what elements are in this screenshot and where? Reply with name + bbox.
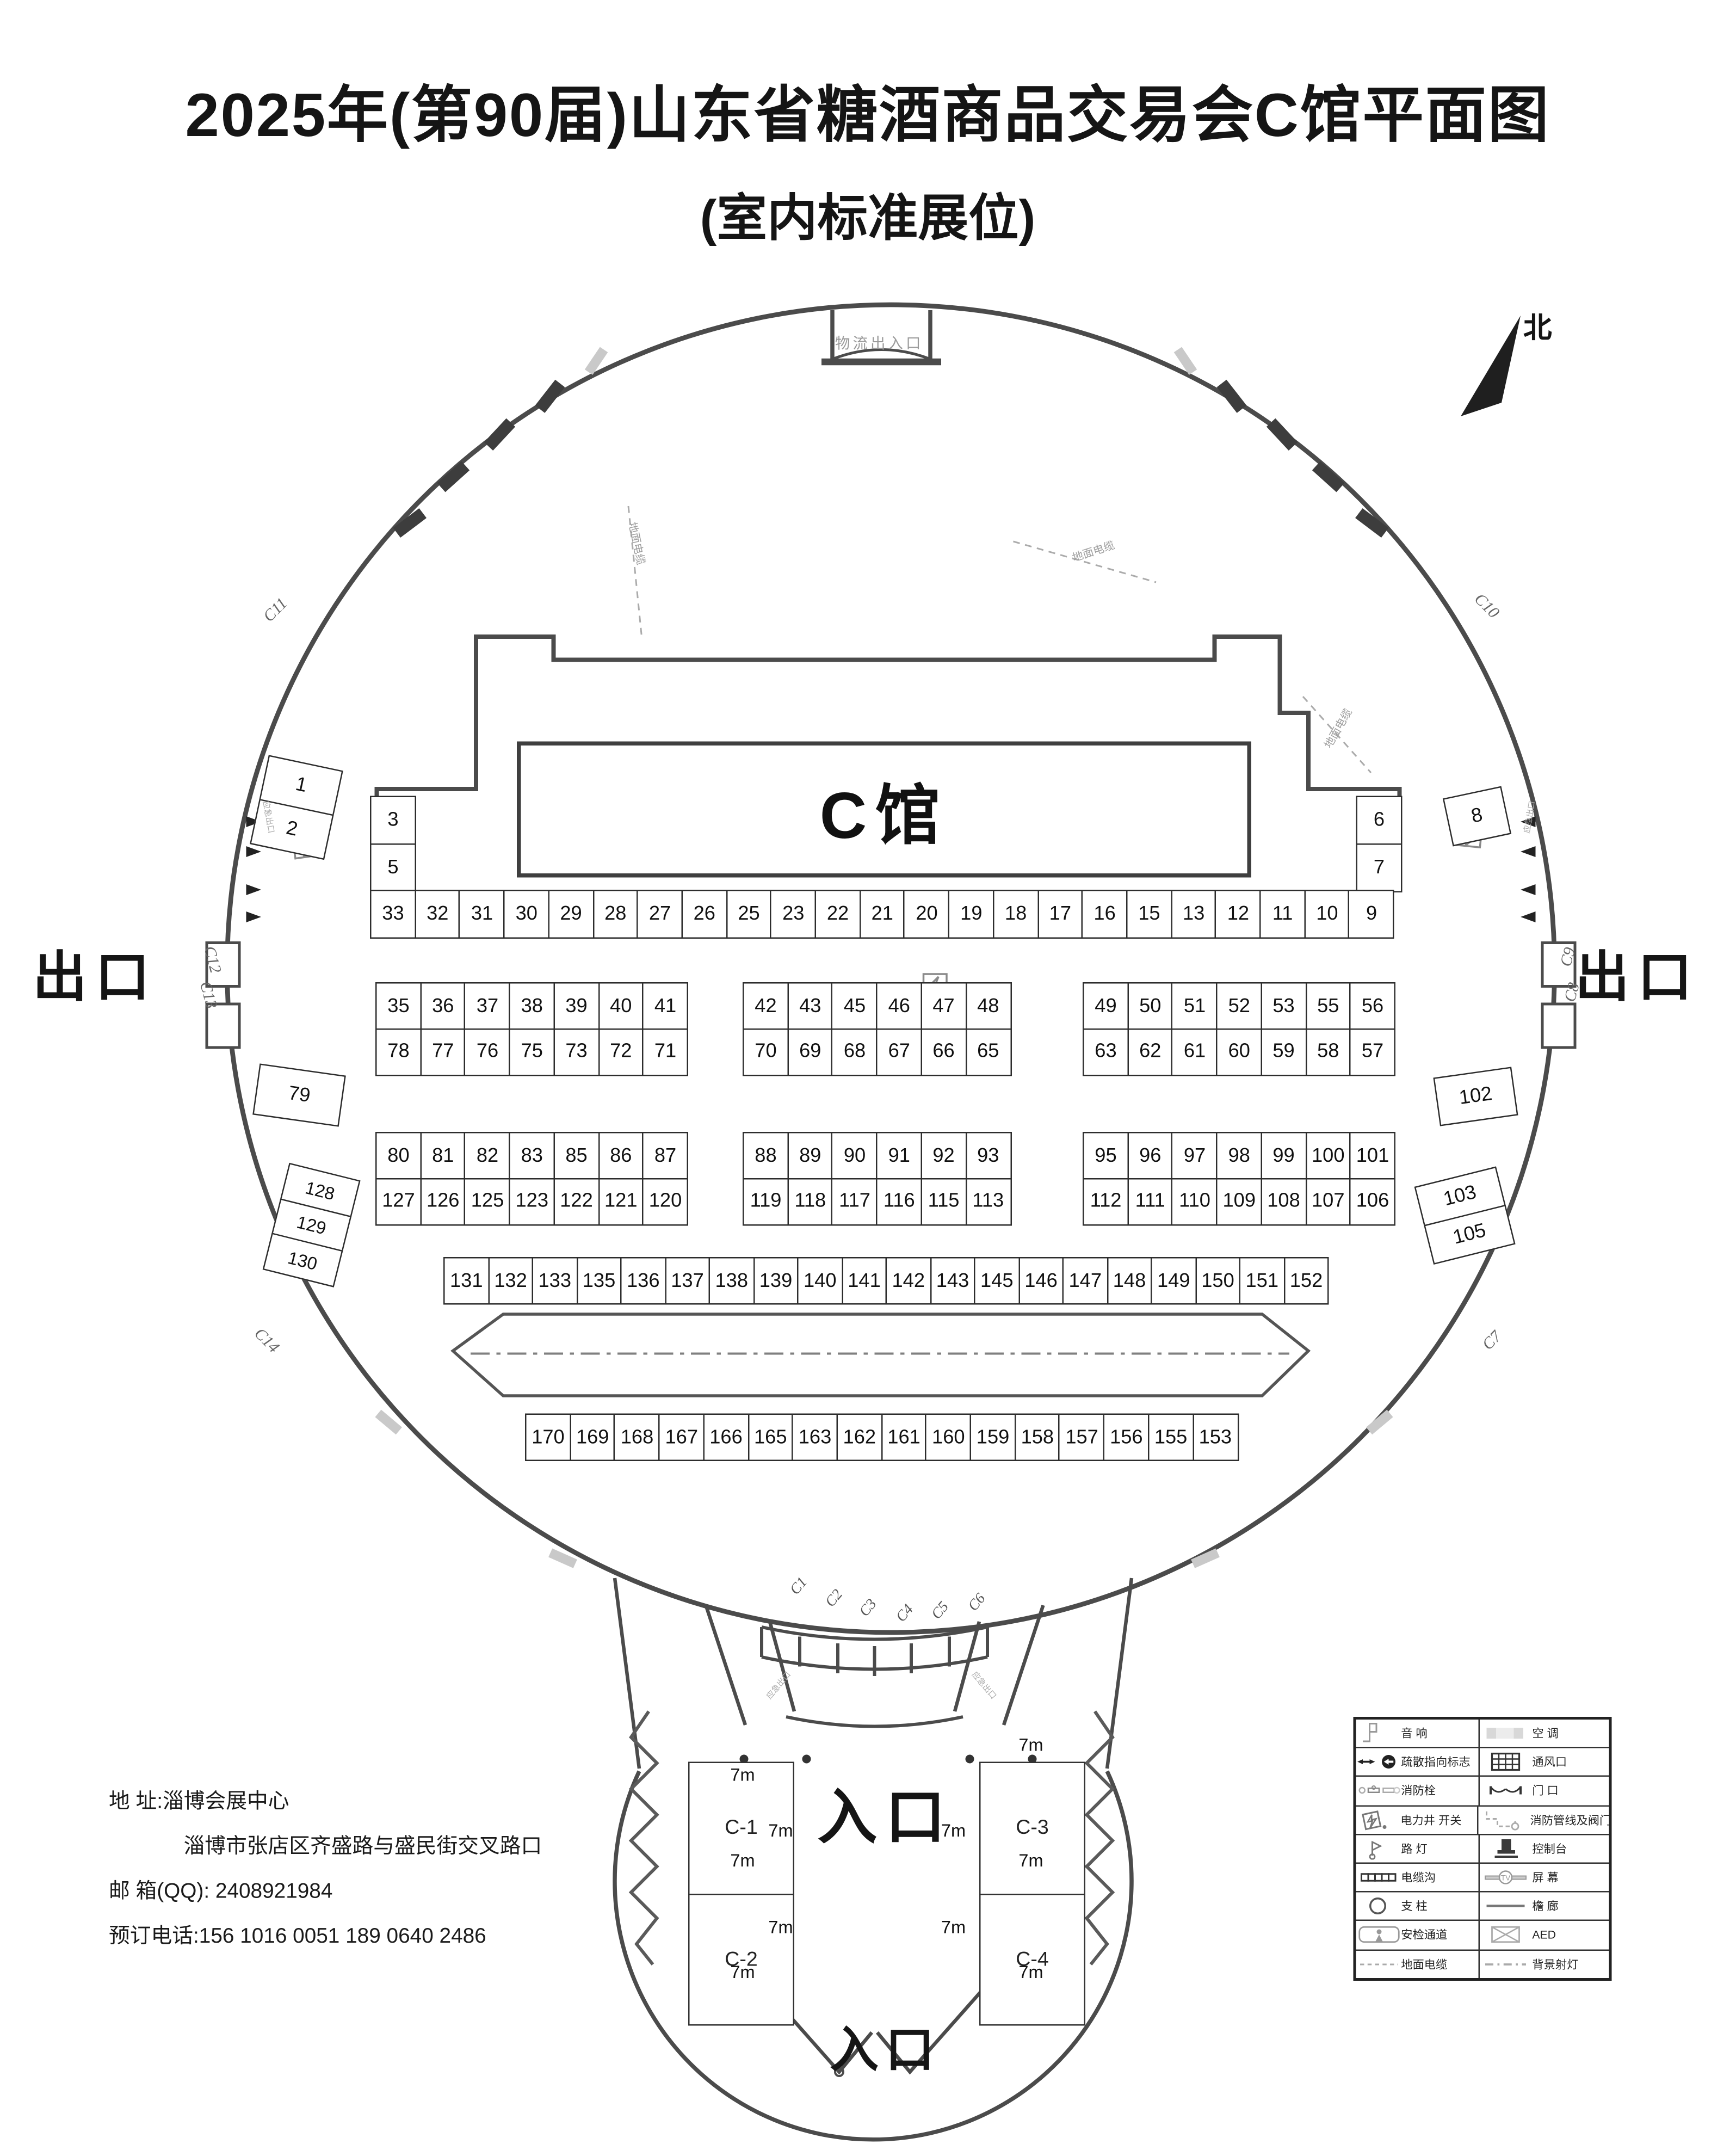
booth-cell: 119	[743, 1178, 789, 1225]
booth-cell: 95	[1083, 1132, 1129, 1180]
booth-cell: 76	[465, 1028, 511, 1076]
booth-cell: 46	[876, 982, 922, 1030]
booth-cell: 168	[614, 1414, 660, 1462]
booth-cell: 11	[1259, 890, 1306, 939]
legend-label: 背景射灯	[1532, 1950, 1609, 1977]
booth-cell: 10	[1304, 890, 1350, 939]
north-arrow-icon	[1461, 316, 1521, 416]
booth-cell: 29	[548, 890, 594, 939]
booth-row-70-65: 706968676665	[743, 1028, 1011, 1076]
pillar-icon	[1356, 1893, 1401, 1920]
big-booth-c3-c4: C-3 C-4	[979, 1762, 1085, 2026]
booth-cell: 93	[965, 1132, 1011, 1180]
booth-cell: 43	[787, 982, 833, 1030]
booth-cell: 23	[770, 890, 817, 939]
booth-cell: 47	[920, 982, 967, 1030]
booth-cell: 28	[592, 890, 639, 939]
booth-cell: 112	[1083, 1178, 1129, 1225]
ac-icon	[1478, 1720, 1532, 1747]
booth-cell: 140	[797, 1257, 843, 1305]
booth-cell: 17	[1037, 890, 1083, 939]
booth-cell: 141	[841, 1257, 887, 1305]
booth-cell: 158	[1014, 1414, 1060, 1462]
legend-label: 电力井 开关	[1400, 1806, 1476, 1833]
booth-cell: 170	[525, 1414, 571, 1462]
background-spotlight-icon	[1478, 1950, 1532, 1977]
booth-cell: 3	[370, 796, 416, 845]
exit-right-label: 出口	[1575, 933, 1700, 1012]
booth-cell: 118	[787, 1178, 833, 1225]
legend-label: 电缆沟	[1401, 1864, 1478, 1891]
booth-cell: 13	[1171, 890, 1217, 939]
booth-cell: 32	[415, 890, 461, 939]
booth-cell: 58	[1305, 1028, 1351, 1076]
booth-cell: 53	[1261, 982, 1307, 1030]
booth-cell: 72	[598, 1028, 644, 1076]
qq-line: 邮 箱(QQ): 2408921984	[109, 1869, 542, 1914]
booth-cell: 113	[965, 1178, 1011, 1225]
booth-cell: 89	[787, 1132, 833, 1180]
vent-icon	[1478, 1748, 1532, 1776]
legend-table: 音 响 空 调 疏散指向标志 通风口 消防栓 门 口 电力井 开关 消防管线及阀…	[1354, 1717, 1612, 1980]
booth-cell: 111	[1127, 1178, 1173, 1225]
booth-cell: 5	[370, 843, 416, 892]
dim-label: 7m	[763, 1917, 799, 1938]
legend-label: 门 口	[1532, 1777, 1609, 1804]
booth-cell: 20	[904, 890, 950, 939]
booth-cell: 83	[509, 1132, 555, 1180]
legend-row: 消防栓 门 口	[1356, 1776, 1609, 1804]
booth-cell: 100	[1305, 1132, 1351, 1180]
legend-row: 地面电缆 背景射灯	[1356, 1949, 1609, 1977]
entrance-bottom-label: 入口	[811, 2011, 960, 2081]
dim-label: 7m	[936, 1820, 971, 1841]
booth-row-49-56: 49505152535556	[1083, 982, 1396, 1030]
cable-trench-icon	[1356, 1864, 1401, 1891]
dim-label: 7m	[763, 1820, 799, 1841]
booth-cell: 33	[370, 890, 416, 939]
booth-cell: 115	[920, 1178, 967, 1225]
legend-label: 安检通道	[1401, 1921, 1478, 1949]
booth-cell: 63	[1083, 1028, 1129, 1076]
booth-cell: 86	[598, 1132, 644, 1180]
speaker-icon	[1356, 1720, 1401, 1747]
booth-cell: 143	[930, 1257, 975, 1305]
booth-row-80-87: 80818283858687	[375, 1132, 689, 1180]
fire-pipe-valve-icon	[1476, 1806, 1530, 1833]
booth-cell: 132	[487, 1257, 533, 1305]
booth-cell: 96	[1127, 1132, 1173, 1180]
booth-cell: 149	[1151, 1257, 1196, 1305]
dim-label: 7m	[936, 1917, 971, 1938]
booth-cell: 99	[1261, 1132, 1307, 1180]
booth-cell: 166	[703, 1414, 749, 1462]
legend-label: 地面电缆	[1401, 1950, 1478, 1977]
booth-cell: 157	[1059, 1414, 1105, 1462]
legend-row: 电缆沟 TV 屏 幕	[1356, 1862, 1609, 1891]
booth-cell: 57	[1350, 1028, 1396, 1076]
svg-text:TV: TV	[1501, 1874, 1511, 1882]
booth-cell: 9	[1349, 890, 1395, 939]
hall-c-building: C馆	[517, 742, 1251, 878]
booth-cell: 148	[1107, 1257, 1152, 1305]
booth-cell: 137	[664, 1257, 710, 1305]
floor-plan-page: 2025年(第90届)山东省糖酒商品交易会C馆平面图 (室内标准展位) 北 C馆…	[0, 0, 1736, 2143]
phone-line: 预订电话:156 1016 0051 189 0640 2486	[109, 1914, 542, 1960]
legend-label: 檐 廊	[1532, 1893, 1609, 1920]
booth-cell: 73	[553, 1028, 600, 1076]
page-title: 2025年(第90届)山东省糖酒商品交易会C馆平面图	[0, 65, 1735, 154]
stage-outline	[453, 1314, 1309, 1396]
booth-cell: 71	[642, 1028, 689, 1076]
dim-label: 7m	[1014, 1735, 1049, 1755]
booth-cell: 49	[1083, 982, 1129, 1030]
street-lamp-icon	[1356, 1835, 1401, 1862]
booth-cell: 60	[1216, 1028, 1262, 1076]
booth-cell: 146	[1018, 1257, 1064, 1305]
fire-hydrant-icon	[1356, 1777, 1401, 1804]
booth-cell: 169	[570, 1414, 616, 1462]
booth-cell: 150	[1195, 1257, 1240, 1305]
booth-cell: 59	[1261, 1028, 1307, 1076]
booth-cell: 110	[1172, 1178, 1218, 1225]
booth-cell: 67	[876, 1028, 922, 1076]
booth-cell: 82	[465, 1132, 511, 1180]
address-line-2: 淄博市张店区齐盛路与盛民街交叉路口	[109, 1825, 542, 1870]
booth-row-35-41: 35363738394041	[375, 982, 689, 1030]
screen-icon: TV	[1478, 1864, 1532, 1891]
booth-cell: 16	[1082, 890, 1128, 939]
legend-label: 通风口	[1532, 1748, 1609, 1776]
dim-label: 7m	[725, 1850, 761, 1871]
booth-cell: 26	[681, 890, 727, 939]
booth-cell: 36	[420, 982, 466, 1030]
ground-cable-icon	[1356, 1950, 1401, 1977]
booth-cell: 152	[1283, 1257, 1329, 1305]
booth-cell: 153	[1192, 1414, 1238, 1462]
legend-label: 空 调	[1532, 1720, 1609, 1747]
booth-row-88-93: 888990919293	[743, 1132, 1011, 1180]
dim-label: 7m	[725, 1962, 761, 1982]
booth-cell: 61	[1172, 1028, 1218, 1076]
power-well-switch-icon	[1356, 1806, 1401, 1833]
booth-cell: 39	[553, 982, 600, 1030]
booth-cell: 41	[642, 982, 689, 1030]
booth-cell: 55	[1305, 982, 1351, 1030]
hall-c-label: C馆	[820, 762, 949, 857]
booth-cell: 151	[1239, 1257, 1285, 1305]
booth-cell: 88	[743, 1132, 789, 1180]
legend-row: 安检通道 AED	[1356, 1920, 1609, 1949]
booth-stack-3-5: 35	[370, 796, 416, 892]
aed-icon	[1478, 1921, 1532, 1949]
logistics-gate-label: 物流出入口	[835, 332, 924, 354]
booth-cell: 117	[832, 1178, 878, 1225]
booth-c4-label: C-4	[981, 1894, 1084, 2024]
booth-row-78-71: 78777675737271	[375, 1028, 689, 1076]
legend-row: 支 柱 檐 廊	[1356, 1891, 1609, 1920]
legend-row: 音 响 空 调	[1356, 1720, 1609, 1747]
booth-cell: 50	[1127, 982, 1173, 1030]
booth-cell: 98	[1216, 1132, 1262, 1180]
booth-cell: 108	[1261, 1178, 1307, 1225]
booth-cell: 70	[743, 1028, 789, 1076]
booth-cell: 27	[637, 890, 683, 939]
booth-cell: 90	[832, 1132, 878, 1180]
booth-cell: 107	[1305, 1178, 1351, 1225]
booth-row-131-152: 1311321331351361371381391401411421431451…	[443, 1257, 1329, 1305]
legend-row: 电力井 开关 消防管线及阀门	[1356, 1804, 1609, 1833]
booth-row-top: 3332313029282726252322212019181716151312…	[370, 890, 1395, 939]
dim-label: 7m	[1014, 1962, 1049, 1982]
booth-c2-label: C-2	[690, 1894, 793, 2024]
legend-label: 消防栓	[1401, 1777, 1478, 1804]
dim-label: 7m	[1014, 1850, 1049, 1871]
booth-cell: 12	[1215, 890, 1261, 939]
legend-label: 路 灯	[1401, 1835, 1478, 1862]
booth-cell: 145	[974, 1257, 1020, 1305]
booth-cell: 165	[747, 1414, 794, 1462]
booth-cell: 97	[1172, 1132, 1218, 1180]
legend-label: 疏散指向标志	[1401, 1748, 1478, 1776]
booth-cell: 126	[420, 1178, 466, 1225]
booth-cell: 85	[553, 1132, 600, 1180]
booth-cell: 133	[532, 1257, 578, 1305]
booth-cell: 69	[787, 1028, 833, 1076]
legend-label: 支 柱	[1401, 1893, 1478, 1920]
booth-cell: 68	[832, 1028, 878, 1076]
booth-cell: 135	[576, 1257, 622, 1305]
booth-cell: 162	[836, 1414, 882, 1462]
legend-label: 音 响	[1401, 1720, 1478, 1747]
booth-cell: 6	[1356, 796, 1403, 845]
booth-cell: 15	[1126, 890, 1172, 939]
exit-left-label: 出口	[33, 933, 158, 1012]
booth-cell: 167	[658, 1414, 705, 1462]
booth-cell: 52	[1216, 982, 1262, 1030]
booth-cell: 161	[881, 1414, 927, 1462]
booth-cell: 116	[876, 1178, 922, 1225]
booth-cell: 25	[726, 890, 772, 939]
booth-cell: 138	[709, 1257, 755, 1305]
booth-row-95-101: 9596979899100101	[1083, 1132, 1396, 1180]
booth-cell: 131	[443, 1257, 489, 1305]
booth-cell: 78	[375, 1028, 422, 1076]
booth-cell: 40	[598, 982, 644, 1030]
contact-info: 地 址:淄博会展中心 淄博市张店区齐盛路与盛民街交叉路口 邮 箱(QQ): 24…	[109, 1779, 542, 1959]
ground-cable-lines	[628, 506, 1371, 773]
booth-row-42-48: 424345464748	[743, 982, 1011, 1030]
booth-cell: 106	[1350, 1178, 1396, 1225]
booth-cell: 7	[1356, 843, 1403, 892]
booth-cell: 139	[753, 1257, 799, 1305]
booth-cell: 87	[642, 1132, 689, 1180]
gate-arc	[762, 1627, 987, 1727]
booth-row-112-106: 112111110109108107106	[1083, 1178, 1396, 1225]
booth-cell: 92	[920, 1132, 967, 1180]
entrance-main-label: 入口	[811, 1769, 960, 1856]
wall-tick-group	[393, 380, 1389, 538]
booth-cell: 77	[420, 1028, 466, 1076]
booth-cell: 66	[920, 1028, 967, 1076]
booth-cell: 120	[642, 1178, 689, 1225]
booth-cell: 125	[465, 1178, 511, 1225]
booth-cell: 51	[1172, 982, 1218, 1030]
booth-row-119-113: 119118117116115113	[743, 1178, 1011, 1225]
booth-cell: 156	[1103, 1414, 1150, 1462]
booth-cell: 35	[375, 982, 422, 1030]
booth-cell: 155	[1148, 1414, 1194, 1462]
booth-cell: 65	[965, 1028, 1011, 1076]
booth-cell: 163	[792, 1414, 838, 1462]
booth-cell: 147	[1062, 1257, 1108, 1305]
booth-cell: 45	[832, 982, 878, 1030]
security-channel-icon	[1356, 1921, 1401, 1949]
north-label: 北	[1523, 306, 1552, 347]
booth-cell: 142	[886, 1257, 931, 1305]
booth-cell: 62	[1127, 1028, 1173, 1076]
page-subtitle: (室内标准展位)	[0, 177, 1735, 250]
booth-cell: 159	[970, 1414, 1016, 1462]
booth-cell: 56	[1350, 982, 1396, 1030]
booth-row-127-120: 127126125123122121120	[375, 1178, 689, 1225]
evacuation-sign-icon	[1356, 1748, 1401, 1776]
booth-row-170-153: 1701691681671661651631621611601591581571…	[525, 1414, 1238, 1462]
booth-cell: 31	[459, 890, 505, 939]
booth-cell: 18	[993, 890, 1039, 939]
booth-stack-6-7: 67	[1356, 796, 1403, 892]
legend-row: 疏散指向标志 通风口	[1356, 1747, 1609, 1776]
booth-cell: 22	[815, 890, 861, 939]
booth-cell: 38	[509, 982, 555, 1030]
booth-cell: 121	[598, 1178, 644, 1225]
booth-cell: 37	[465, 982, 511, 1030]
booth-cell: 80	[375, 1132, 422, 1180]
booth-cell: 160	[925, 1414, 972, 1462]
booth-cell: 123	[509, 1178, 555, 1225]
booth-c3-label: C-3	[981, 1763, 1084, 1894]
booth-cell: 48	[965, 982, 1011, 1030]
booth-row-63-57: 63626160595857	[1083, 1028, 1396, 1076]
legend-label: AED	[1532, 1921, 1609, 1949]
booth-cell: 122	[553, 1178, 600, 1225]
booth-cell: 101	[1350, 1132, 1396, 1180]
legend-label: 屏 幕	[1532, 1864, 1609, 1891]
booth-cell: 81	[420, 1132, 466, 1180]
booth-cell: 75	[509, 1028, 555, 1076]
dim-label: 7m	[725, 1765, 761, 1785]
console-icon	[1478, 1835, 1532, 1862]
booth-cell: 127	[375, 1178, 422, 1225]
booth-cell: 42	[743, 982, 789, 1030]
door-icon	[1478, 1777, 1532, 1804]
booth-cell: 136	[620, 1257, 666, 1305]
booth-cell: 19	[948, 890, 994, 939]
booth-cell: 91	[876, 1132, 922, 1180]
booth-cell: 109	[1216, 1178, 1262, 1225]
address-line-1: 地 址:淄博会展中心	[109, 1779, 542, 1825]
eave-corridor-icon	[1478, 1893, 1532, 1920]
legend-label: 控制台	[1532, 1835, 1609, 1862]
booth-cell: 30	[503, 890, 549, 939]
legend-row: 路 灯 控制台	[1356, 1833, 1609, 1862]
legend-label: 消防管线及阀门	[1530, 1806, 1609, 1833]
booth-cell: 21	[859, 890, 905, 939]
big-booth-c1-c2: C-1 C-2	[688, 1762, 794, 2026]
